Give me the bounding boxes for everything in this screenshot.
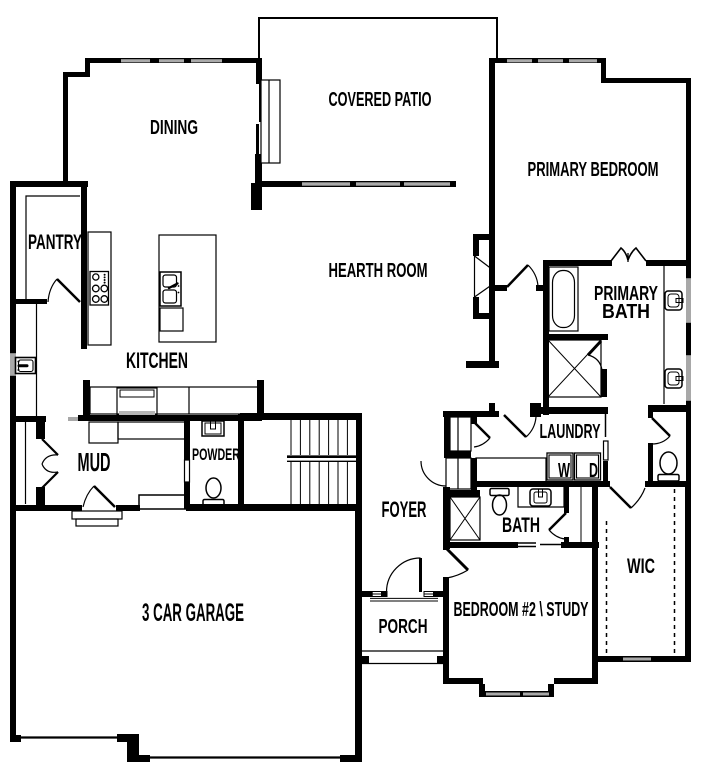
svg-text:PANTRY: PANTRY bbox=[28, 231, 82, 254]
svg-text:BATH: BATH bbox=[602, 301, 650, 323]
svg-text:BATH: BATH bbox=[502, 514, 540, 537]
svg-text:BEDROOM #2 \ STUDY: BEDROOM #2 \ STUDY bbox=[454, 599, 589, 621]
svg-text:HEARTH ROOM: HEARTH ROOM bbox=[329, 260, 428, 282]
svg-text:WIC: WIC bbox=[627, 555, 655, 578]
svg-text:PRIMARY BEDROOM: PRIMARY BEDROOM bbox=[528, 159, 659, 181]
svg-text:W: W bbox=[558, 460, 570, 482]
svg-text:FOYER: FOYER bbox=[382, 497, 427, 522]
svg-text:COVERED PATIO: COVERED PATIO bbox=[329, 89, 432, 111]
svg-text:DINING: DINING bbox=[150, 117, 198, 139]
svg-text:LAUNDRY: LAUNDRY bbox=[540, 421, 601, 443]
svg-text:KITCHEN: KITCHEN bbox=[126, 348, 188, 373]
svg-text:PORCH: PORCH bbox=[379, 616, 428, 638]
svg-text:MUD: MUD bbox=[78, 447, 111, 477]
svg-text:D: D bbox=[589, 460, 598, 482]
svg-text:POWDER: POWDER bbox=[192, 445, 240, 464]
svg-text:3 CAR GARAGE: 3 CAR GARAGE bbox=[142, 599, 244, 627]
